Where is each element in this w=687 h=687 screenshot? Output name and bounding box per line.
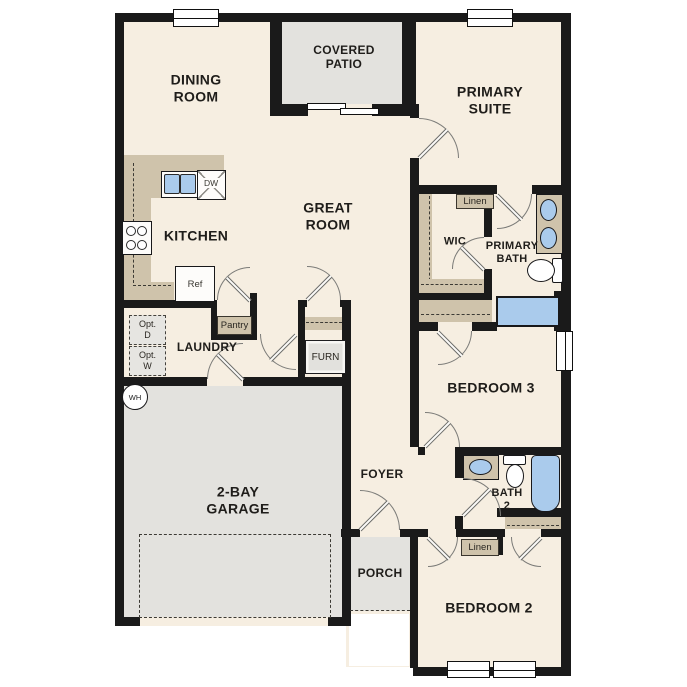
wall	[541, 529, 571, 537]
door-bedroom3	[425, 412, 460, 447]
shelf-dashed	[429, 196, 430, 291]
pantry-closet: Pantry	[217, 316, 252, 335]
room-label-patio: COVERED PATIO	[313, 43, 374, 71]
shelf-dashed	[421, 314, 490, 315]
room-label-bath2: BATH 2	[492, 487, 523, 513]
wall	[298, 300, 307, 307]
door-laundry-hall	[260, 334, 296, 370]
burner	[137, 240, 147, 250]
room-label-porch: PORCH	[358, 566, 403, 580]
room-label-great-room: GREAT ROOM	[303, 199, 352, 232]
sink-basin	[164, 174, 180, 194]
furnace-label: FURN	[312, 352, 340, 363]
bedroom2-closet-shelf	[505, 517, 561, 529]
furn-closet-shelf	[305, 317, 342, 330]
room-label-primary-bath: PRIMARY BATH	[486, 240, 538, 266]
wall	[298, 300, 305, 386]
shelf-dashed	[421, 284, 482, 285]
outside-area	[110, 626, 346, 682]
floor-plan-canvas: DW Ref Pantry Opt. D Opt. W FURN WH Line…	[0, 0, 687, 687]
room-label-bedroom2: BEDROOM 2	[445, 600, 533, 617]
vanity-counter	[536, 194, 563, 254]
wall	[418, 293, 492, 300]
shelf-dashed	[507, 525, 559, 526]
wall	[410, 322, 438, 331]
vanity-sink	[540, 199, 557, 221]
toilet-bowl	[506, 464, 524, 488]
bath2-sink-counter	[463, 455, 499, 480]
room-label-dining: DINING ROOM	[171, 71, 222, 104]
wall	[410, 185, 497, 194]
room-label-wic: WIC	[444, 236, 466, 249]
door-pantry	[217, 267, 250, 300]
wall	[402, 13, 416, 116]
counter-edge-dashed	[133, 285, 171, 286]
wall	[410, 158, 419, 447]
refrigerator-label: Ref	[188, 279, 203, 290]
sliding-glass-door	[340, 108, 379, 115]
shower	[496, 296, 560, 327]
burner	[137, 226, 147, 236]
bedroom3-closet-shelf	[419, 300, 492, 322]
wall	[484, 269, 492, 296]
window	[467, 9, 513, 27]
wall	[410, 104, 419, 118]
shelf-dashed	[306, 322, 342, 323]
room-label-bedroom3: BEDROOM 3	[447, 380, 535, 397]
stove	[122, 221, 152, 255]
door-bedroom2-closet	[511, 537, 541, 567]
outside-area	[349, 614, 409, 666]
wall	[455, 447, 463, 478]
wall	[410, 529, 418, 668]
window	[173, 9, 219, 27]
door-bedroom3-closet	[438, 331, 472, 365]
porch-edge-dashed	[350, 610, 410, 611]
door-furnace-closet	[307, 266, 341, 300]
door-front-entry	[360, 490, 400, 530]
wall	[115, 13, 124, 626]
optional-washer: Opt. W	[129, 346, 166, 376]
room-label-laundry: LAUNDRY	[177, 340, 237, 354]
window	[493, 661, 536, 678]
wall	[418, 447, 425, 455]
room-label-primary-suite: PRIMARY SUITE	[457, 83, 523, 116]
garage-door-outline	[139, 534, 331, 618]
wall	[400, 529, 418, 537]
wall	[532, 185, 571, 194]
door-primary-bath	[497, 194, 532, 229]
door-bedroom2	[428, 537, 458, 567]
room-label-foyer: FOYER	[361, 467, 404, 481]
wic-shelf	[419, 279, 484, 293]
linen-closet-hall: Linen	[461, 539, 499, 556]
vanity-sink	[540, 227, 557, 249]
wall	[472, 322, 497, 331]
wall	[243, 377, 351, 386]
refrigerator: Ref	[175, 266, 215, 302]
wall	[270, 13, 282, 116]
wall	[270, 104, 308, 116]
room-label-kitchen: KITCHEN	[164, 228, 228, 245]
optional-dryer: Opt. D	[129, 315, 166, 345]
kitchen-sink	[161, 171, 200, 198]
wall	[340, 300, 344, 307]
water-heater-label: WH	[129, 393, 142, 402]
door-primary-suite	[419, 118, 459, 158]
dishwasher-label: DW	[203, 178, 219, 188]
window	[556, 331, 573, 371]
wall	[455, 516, 463, 529]
window	[447, 661, 490, 678]
burner	[126, 240, 136, 250]
bath2-sink	[469, 459, 492, 475]
bathtub	[531, 455, 560, 512]
wall	[115, 617, 140, 626]
burner	[126, 226, 136, 236]
sink-basin	[180, 174, 196, 194]
furnace: FURN	[305, 340, 346, 374]
wall	[455, 447, 571, 455]
linen-closet-primary: Linen	[456, 194, 494, 209]
room-label-garage: 2-BAY GARAGE	[206, 483, 269, 516]
water-heater: WH	[122, 384, 148, 410]
wall	[413, 667, 571, 676]
